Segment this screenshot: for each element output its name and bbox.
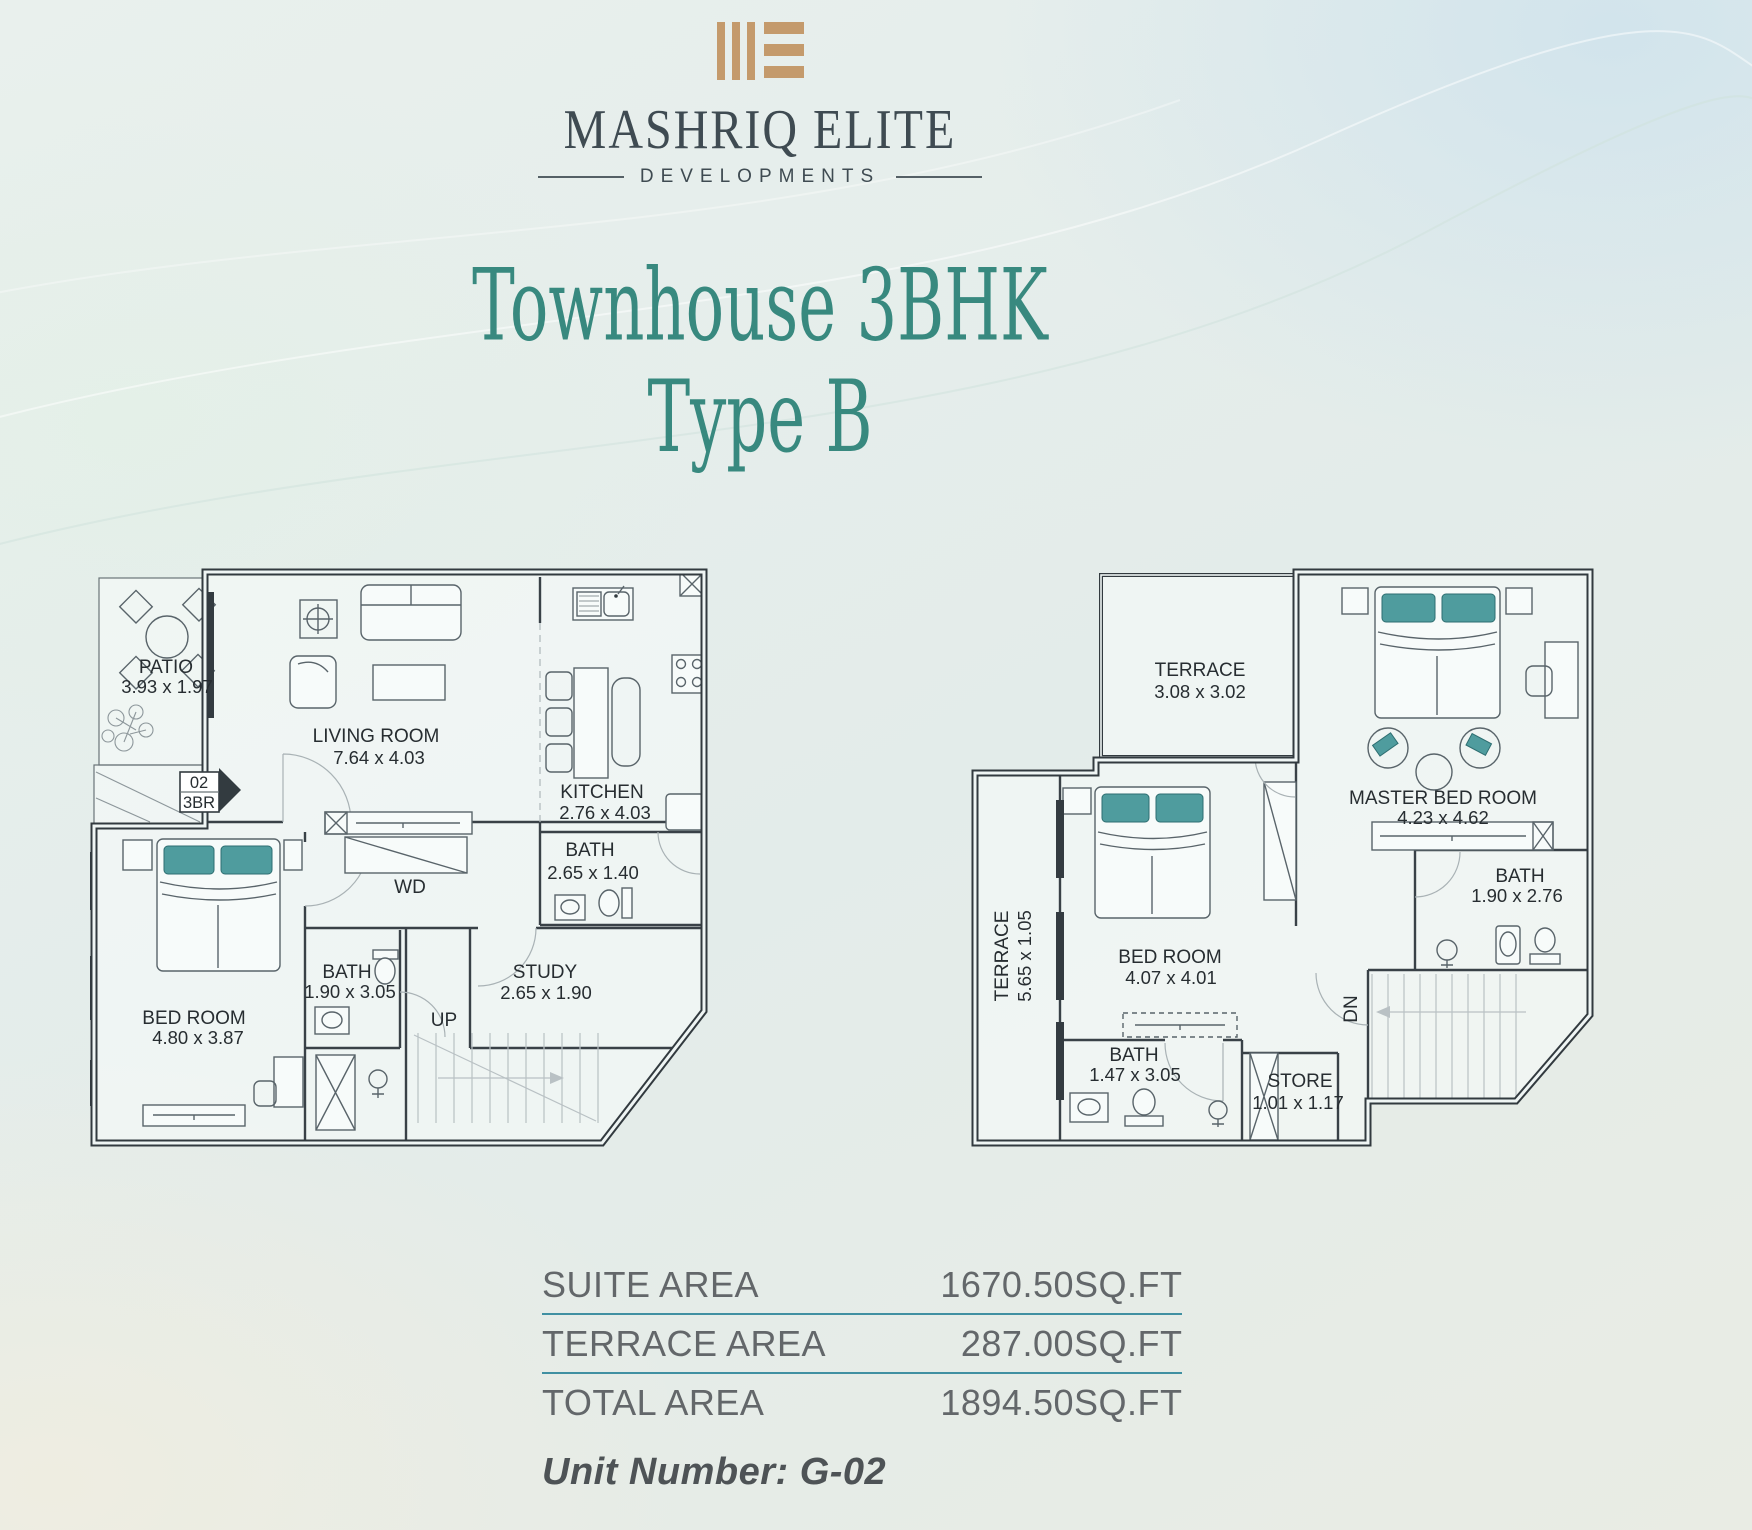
area-label: SUITE AREA bbox=[542, 1264, 914, 1306]
room-label-terrace-side: TERRACE bbox=[992, 911, 1013, 1002]
wd-closet bbox=[325, 812, 472, 873]
room-label-living: LIVING ROOM bbox=[313, 726, 440, 747]
area-label: TERRACE AREA bbox=[542, 1323, 914, 1365]
brand-tagline-row: DEVELOPMENTS bbox=[360, 166, 1160, 188]
room-dims-kitchen: 2.76 x 4.03 bbox=[559, 802, 651, 823]
stairs-up-label: UP bbox=[431, 1010, 457, 1031]
room-label-master: MASTER BED ROOM bbox=[1349, 788, 1537, 809]
room-label-study: STUDY bbox=[513, 962, 578, 983]
room-label-bath-left: BATH bbox=[322, 962, 371, 983]
room-label-bedroom: BED ROOM bbox=[1118, 947, 1221, 968]
dining-table-icon bbox=[574, 668, 608, 778]
area-value: 287.00 bbox=[914, 1323, 1074, 1365]
room-dims-master: 4.23 x 4.62 bbox=[1397, 807, 1489, 828]
unit-number: Unit Number: G-02 bbox=[542, 1451, 1182, 1494]
room-dims-bedroom: 4.07 x 4.01 bbox=[1125, 967, 1217, 988]
tagline-rule-left bbox=[538, 176, 624, 178]
unit-marker-type: 3BR bbox=[183, 794, 215, 812]
desk-icon bbox=[274, 1057, 303, 1107]
room-label-bath-bottom: BATH bbox=[1109, 1045, 1158, 1066]
area-table: SUITE AREA 1670.50 SQ.FT TERRACE AREA 28… bbox=[542, 1256, 1182, 1494]
stairs-down-label: DN bbox=[1341, 995, 1362, 1022]
floor-plan-ground: 02 3BR PATIO 3.93 x 1.97 LIVING ROOM 7.6… bbox=[88, 560, 713, 1160]
area-row-suite: SUITE AREA 1670.50 SQ.FT bbox=[542, 1256, 1182, 1315]
area-value: 1894.50 bbox=[914, 1382, 1074, 1424]
logo-vertical-bars-icon bbox=[717, 22, 755, 80]
room-dims-bath-left: 1.90 x 3.05 bbox=[304, 981, 396, 1002]
nightstand-icon bbox=[1506, 588, 1532, 614]
nightstand-icon bbox=[284, 840, 302, 870]
brand-header: MASHRIQ ELITE DEVELOPMENTS bbox=[360, 0, 1160, 188]
sink-icon bbox=[573, 588, 633, 620]
armchair-icon bbox=[290, 656, 336, 708]
room-dims-living: 7.64 x 4.03 bbox=[333, 747, 425, 768]
area-unit: SQ.FT bbox=[1074, 1382, 1182, 1424]
coffee-table-icon bbox=[373, 665, 445, 700]
floor-plan-first: TERRACE 3.08 x 3.02 MASTER BED ROOM 4.23… bbox=[960, 560, 1608, 1160]
room-dims-study: 2.65 x 1.90 bbox=[500, 982, 592, 1003]
room-label-kitchen: KITCHEN bbox=[560, 782, 643, 803]
room-dims-store: 1.01 x 1.17 bbox=[1252, 1092, 1344, 1113]
basin-icon bbox=[315, 1007, 349, 1034]
logo-e-bars-icon bbox=[764, 22, 804, 80]
page-title-line2: Type B bbox=[440, 362, 1080, 474]
tagline-rule-right bbox=[896, 176, 982, 178]
fridge-icon bbox=[666, 794, 704, 830]
basin-icon bbox=[555, 895, 585, 920]
room-label-wd: WD bbox=[394, 877, 426, 898]
room-label-store: STORE bbox=[1267, 1071, 1332, 1092]
room-dims-bath-bottom: 1.47 x 3.05 bbox=[1089, 1064, 1181, 1085]
room-dims-bath-top: 2.65 x 1.40 bbox=[547, 862, 639, 883]
room-label-terrace-top: TERRACE bbox=[1155, 660, 1246, 681]
room-dims-patio: 3.93 x 1.97 bbox=[121, 676, 213, 697]
room-label-bath-top: BATH bbox=[565, 840, 614, 861]
brand-name: MASHRIQ ELITE bbox=[360, 98, 1160, 162]
nightstand-icon bbox=[1063, 788, 1091, 814]
desk-icon bbox=[1545, 642, 1578, 718]
room-label-bedroom: BED ROOM bbox=[142, 1008, 245, 1029]
windows bbox=[1056, 800, 1064, 1100]
nightstand-icon bbox=[1342, 588, 1368, 614]
room-dims-terrace-side: 5.65 x 1.05 bbox=[1014, 910, 1035, 1002]
area-row-terrace: TERRACE AREA 287.00 SQ.FT bbox=[542, 1315, 1182, 1374]
page-title: Townhouse 3BHK Type B bbox=[440, 250, 1080, 474]
area-unit: SQ.FT bbox=[1074, 1264, 1182, 1306]
brand-logo-icon bbox=[715, 22, 805, 80]
page-title-line1: Townhouse 3BHK bbox=[440, 250, 1080, 362]
area-label: TOTAL AREA bbox=[542, 1382, 914, 1424]
brand-tagline: DEVELOPMENTS bbox=[640, 166, 880, 188]
area-row-total: TOTAL AREA 1894.50 SQ.FT bbox=[542, 1374, 1182, 1431]
unit-marker-number: 02 bbox=[190, 774, 208, 792]
room-label-patio: PATIO bbox=[139, 657, 193, 678]
area-value: 1670.50 bbox=[914, 1264, 1074, 1306]
nightstand-icon bbox=[123, 840, 152, 870]
basin-icon bbox=[1070, 1093, 1108, 1122]
room-dims-bedroom: 4.80 x 3.87 bbox=[152, 1027, 244, 1048]
brochure-page: MASHRIQ ELITE DEVELOPMENTS Townhouse 3BH… bbox=[0, 0, 1752, 1530]
toilet-icon bbox=[599, 888, 632, 918]
area-unit: SQ.FT bbox=[1074, 1323, 1182, 1365]
room-dims-terrace-top: 3.08 x 3.02 bbox=[1154, 681, 1246, 702]
room-dims-bath-right: 1.90 x 2.76 bbox=[1471, 885, 1563, 906]
room-label-bath-right: BATH bbox=[1495, 866, 1544, 887]
